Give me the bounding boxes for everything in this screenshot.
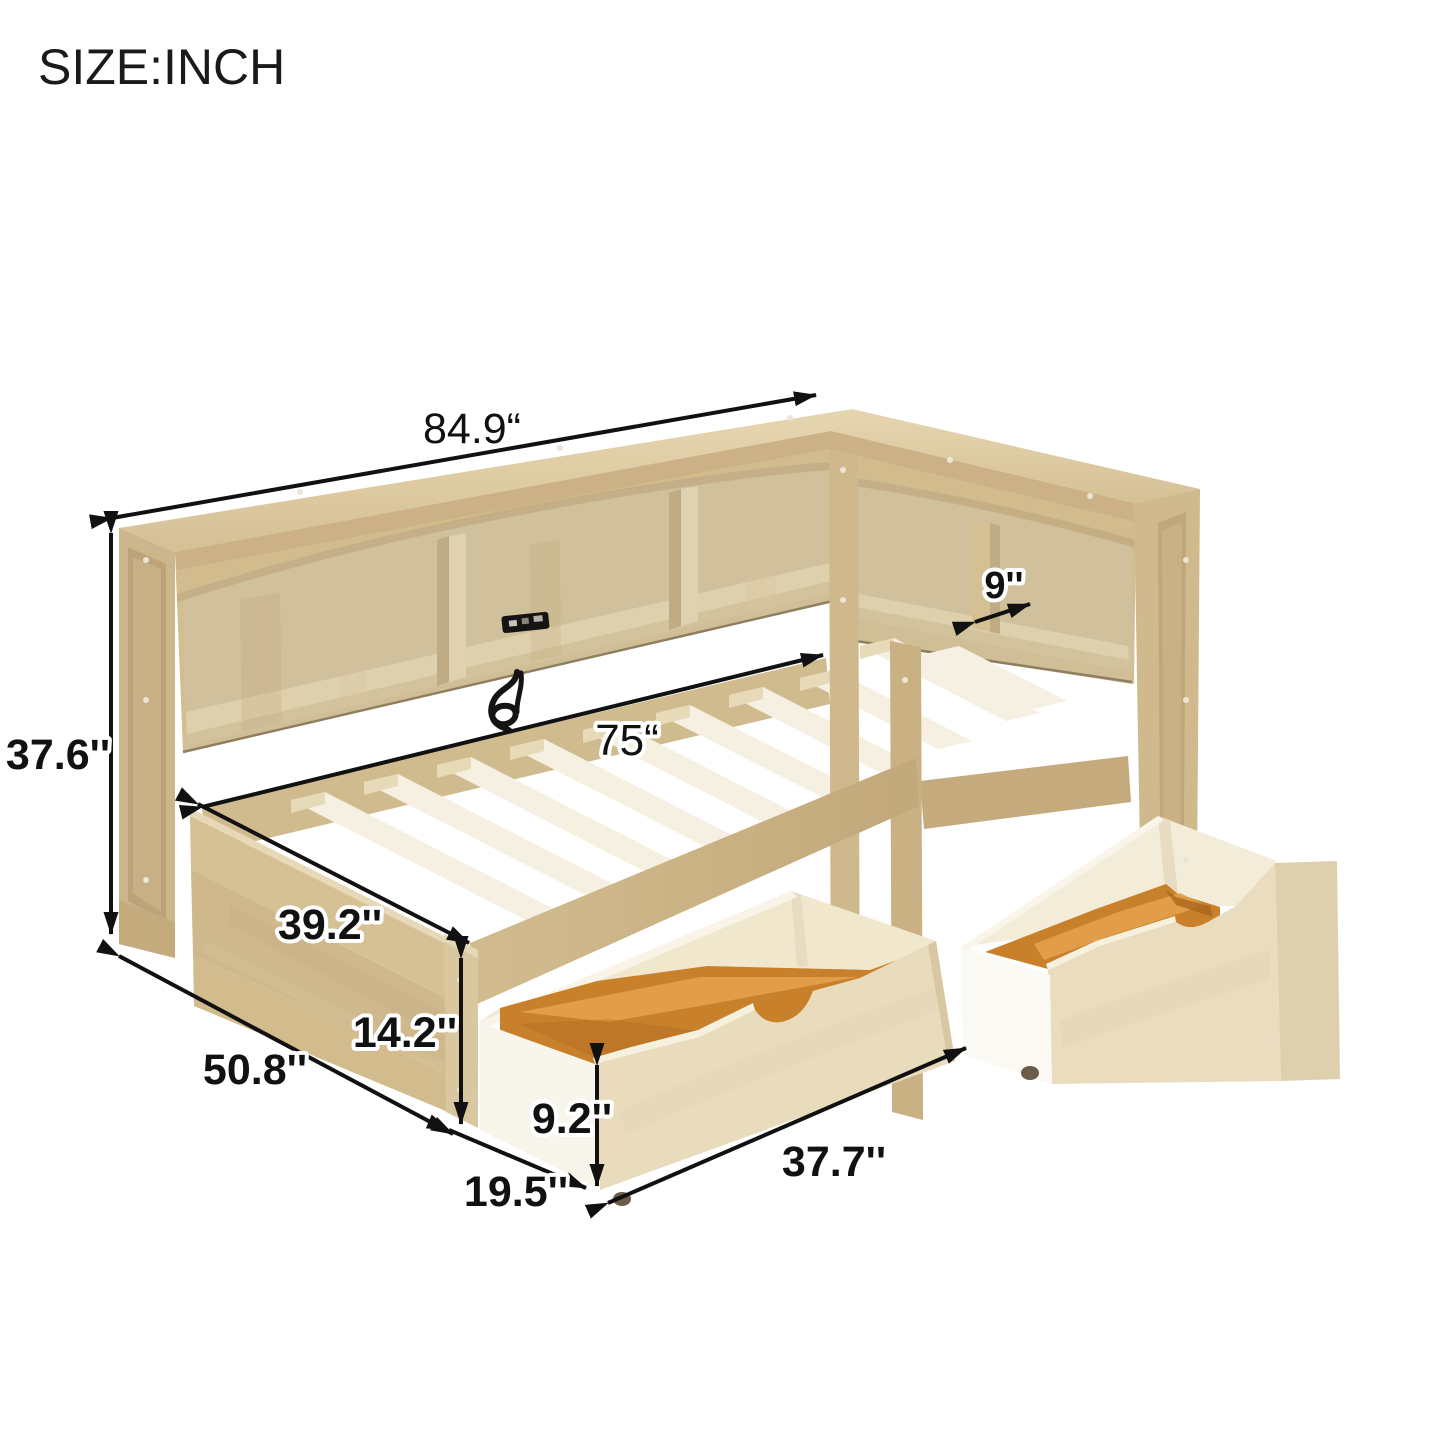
svg-text:SIZE:INCH: SIZE:INCH — [38, 39, 285, 95]
svg-text:39.2'': 39.2'' — [278, 901, 382, 949]
svg-text:14.2'': 14.2'' — [353, 1009, 457, 1057]
svg-text:75“: 75“ — [595, 716, 659, 765]
svg-text:9'': 9'' — [984, 565, 1023, 607]
svg-text:9.2'': 9.2'' — [532, 1095, 612, 1143]
svg-text:37.7'': 37.7'' — [782, 1138, 886, 1186]
svg-text:37.6'': 37.6'' — [6, 731, 110, 779]
svg-text:50.8'': 50.8'' — [203, 1046, 307, 1094]
svg-text:19.5'': 19.5'' — [464, 1168, 568, 1216]
svg-text:84.9“: 84.9“ — [423, 405, 521, 453]
